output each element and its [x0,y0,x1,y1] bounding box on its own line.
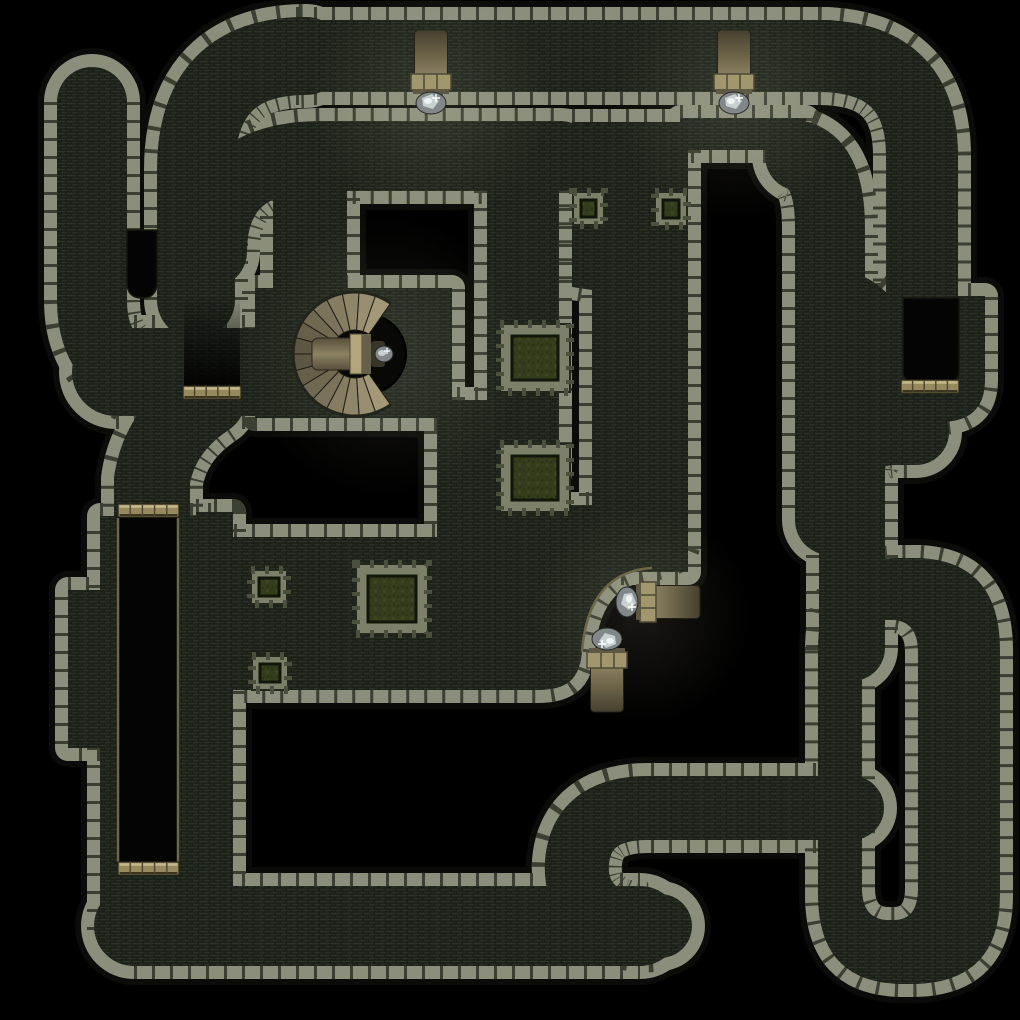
dungeon-map-svg [0,0,1020,1020]
wall-torch-north-east[interactable] [714,30,754,114]
moss-planter-middle [500,444,570,512]
room-west-strip [196,512,233,892]
door-bulb-closet[interactable] [901,380,959,393]
moss-pillar-east-2 [655,192,687,226]
moss-planter-south [356,564,428,634]
crystal-icon [719,92,749,114]
alcove-torch-south[interactable] [587,628,627,712]
crystal-icon [592,628,622,650]
dungeon-map [0,0,1020,1020]
door-approach-shadow [184,296,240,386]
crystal-icon [375,346,393,362]
wall-notch [127,230,157,298]
moss-planter-north [500,324,570,392]
pit [117,517,179,863]
door-pit-south[interactable] [118,862,179,875]
shadow-layer [184,296,240,386]
moss-pillar-west-2 [252,656,288,690]
alcove-torch-east[interactable] [616,582,700,622]
moss-pillar-east-1 [573,192,604,225]
bulb-closet [903,298,959,381]
crystal-icon [616,587,638,617]
door-pit-north[interactable] [118,504,179,517]
door-west-junction[interactable] [183,386,241,399]
moss-pillar-west-1 [251,570,287,604]
wall-torch-north-west[interactable] [411,30,451,114]
crystal-icon [416,92,446,114]
room-west-bump [68,590,104,748]
